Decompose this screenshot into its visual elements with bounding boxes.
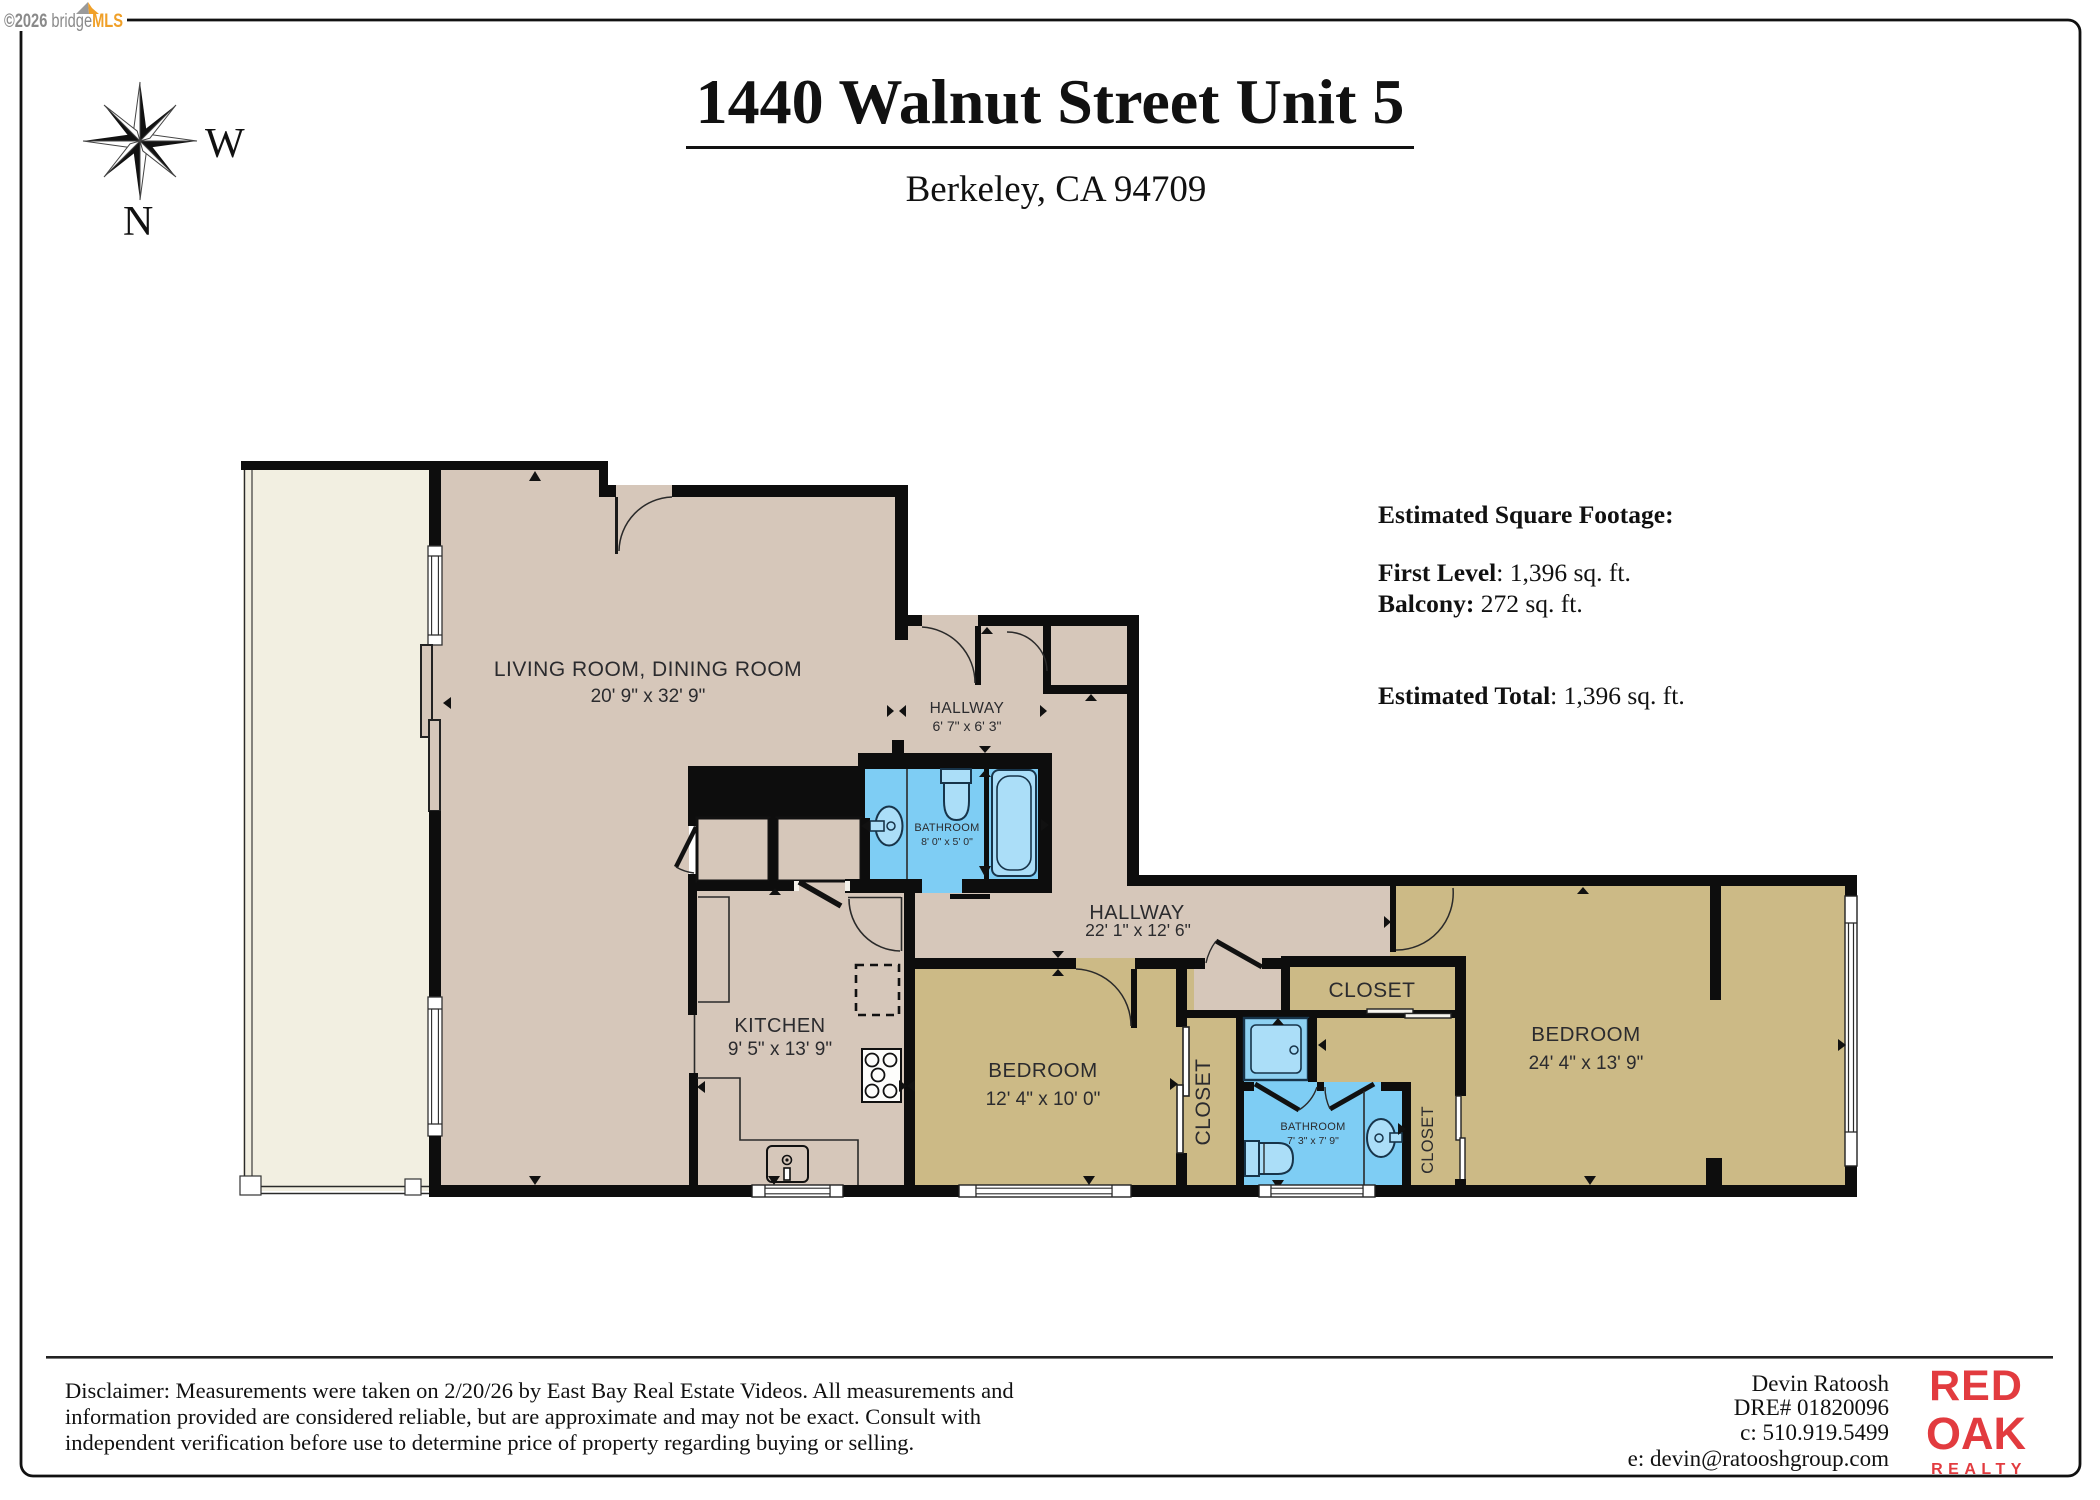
svg-text:7' 3" x 7' 9": 7' 3" x 7' 9" [1287,1135,1339,1147]
svg-text:N: N [123,199,153,245]
svg-text:Disclaimer: Measurements were: Disclaimer: Measurements were taken on 2… [65,1378,1014,1403]
svg-text:©2026 bridgeMLS: ©2026 bridgeMLS [4,10,123,32]
svg-text:CLOSET: CLOSET [1328,979,1415,1002]
svg-text:9' 5" x 13' 9": 9' 5" x 13' 9" [728,1039,832,1060]
svg-text:c: 510.919.5499: c: 510.919.5499 [1740,1420,1889,1445]
svg-text:BATHROOM: BATHROOM [914,822,979,834]
svg-text:CLOSET: CLOSET [1419,1106,1437,1174]
svg-text:20' 9" x 32' 9": 20' 9" x 32' 9" [591,686,706,707]
svg-text:HALLWAY: HALLWAY [930,700,1005,717]
svg-text:RED: RED [1929,1362,2023,1410]
svg-text:W: W [205,121,245,167]
svg-text:BATHROOM: BATHROOM [1280,1121,1345,1133]
svg-text:22' 1" x 12' 6": 22' 1" x 12' 6" [1085,920,1191,940]
svg-text:OAK: OAK [1926,1408,2027,1459]
svg-text:Berkeley, CA 94709: Berkeley, CA 94709 [906,169,1207,210]
svg-text:8' 0" x 5' 0": 8' 0" x 5' 0" [921,836,973,848]
svg-text:Balcony: 272 sq. ft.: Balcony: 272 sq. ft. [1378,589,1583,618]
svg-text:BEDROOM: BEDROOM [1531,1023,1640,1046]
svg-text:1440 Walnut Street Unit 5: 1440 Walnut Street Unit 5 [696,66,1405,137]
svg-text:BEDROOM: BEDROOM [988,1059,1097,1082]
svg-text:DRE# 01820096: DRE# 01820096 [1734,1395,1889,1420]
svg-text:12' 4" x 10' 0": 12' 4" x 10' 0" [986,1089,1101,1110]
svg-text:KITCHEN: KITCHEN [734,1015,825,1037]
svg-text:CLOSET: CLOSET [1192,1058,1215,1145]
svg-text:e: devin@ratooshgroup.com: e: devin@ratooshgroup.com [1628,1446,1889,1471]
svg-text:Estimated Square Footage:: Estimated Square Footage: [1378,500,1674,529]
svg-text:REALTY: REALTY [1931,1461,2027,1478]
svg-text:Estimated Total: 1,396 sq. ft.: Estimated Total: 1,396 sq. ft. [1378,681,1685,710]
svg-text:First Level: 1,396 sq. ft.: First Level: 1,396 sq. ft. [1378,558,1631,587]
svg-text:24' 4" x 13' 9": 24' 4" x 13' 9" [1529,1053,1644,1074]
svg-text:Devin Ratoosh: Devin Ratoosh [1752,1371,1890,1396]
svg-text:information provided are consi: information provided are considered reli… [65,1404,981,1429]
svg-text:6' 7" x 6' 3": 6' 7" x 6' 3" [933,718,1002,734]
svg-text:independent verification befor: independent verification before use to d… [65,1430,914,1455]
svg-text:LIVING ROOM, DINING ROOM: LIVING ROOM, DINING ROOM [494,658,802,681]
